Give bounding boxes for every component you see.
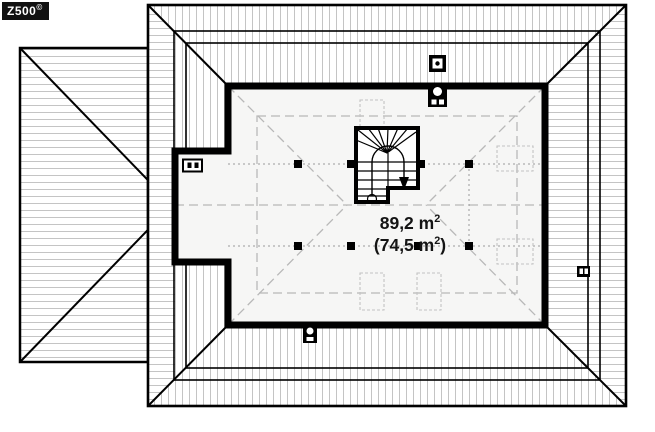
area-net: (74,5 m2) — [320, 234, 500, 256]
room-area-label: 89,2 m2 (74,5 m2) — [320, 212, 500, 257]
post-square — [465, 160, 473, 168]
roof-vent-icon — [183, 160, 202, 172]
z500-logo-text: Z500 — [7, 4, 36, 18]
roof-plane-west — [148, 5, 175, 406]
post-square — [347, 160, 355, 168]
post-square — [294, 242, 302, 250]
chimney-flue-icon — [429, 55, 446, 72]
post-square — [417, 160, 425, 168]
roof-vent-icon — [577, 266, 590, 277]
ventilation-stack-icon — [303, 326, 317, 343]
z500-logo: Z500© — [2, 2, 49, 20]
ventilation-stack-icon — [428, 84, 447, 107]
attic-floor-plan: Z500© 89,2 m2 (74,5 m2) — [0, 0, 655, 432]
post-square — [294, 160, 302, 168]
copyright-mark: © — [36, 3, 42, 12]
area-gross: 89,2 m2 — [320, 212, 500, 234]
